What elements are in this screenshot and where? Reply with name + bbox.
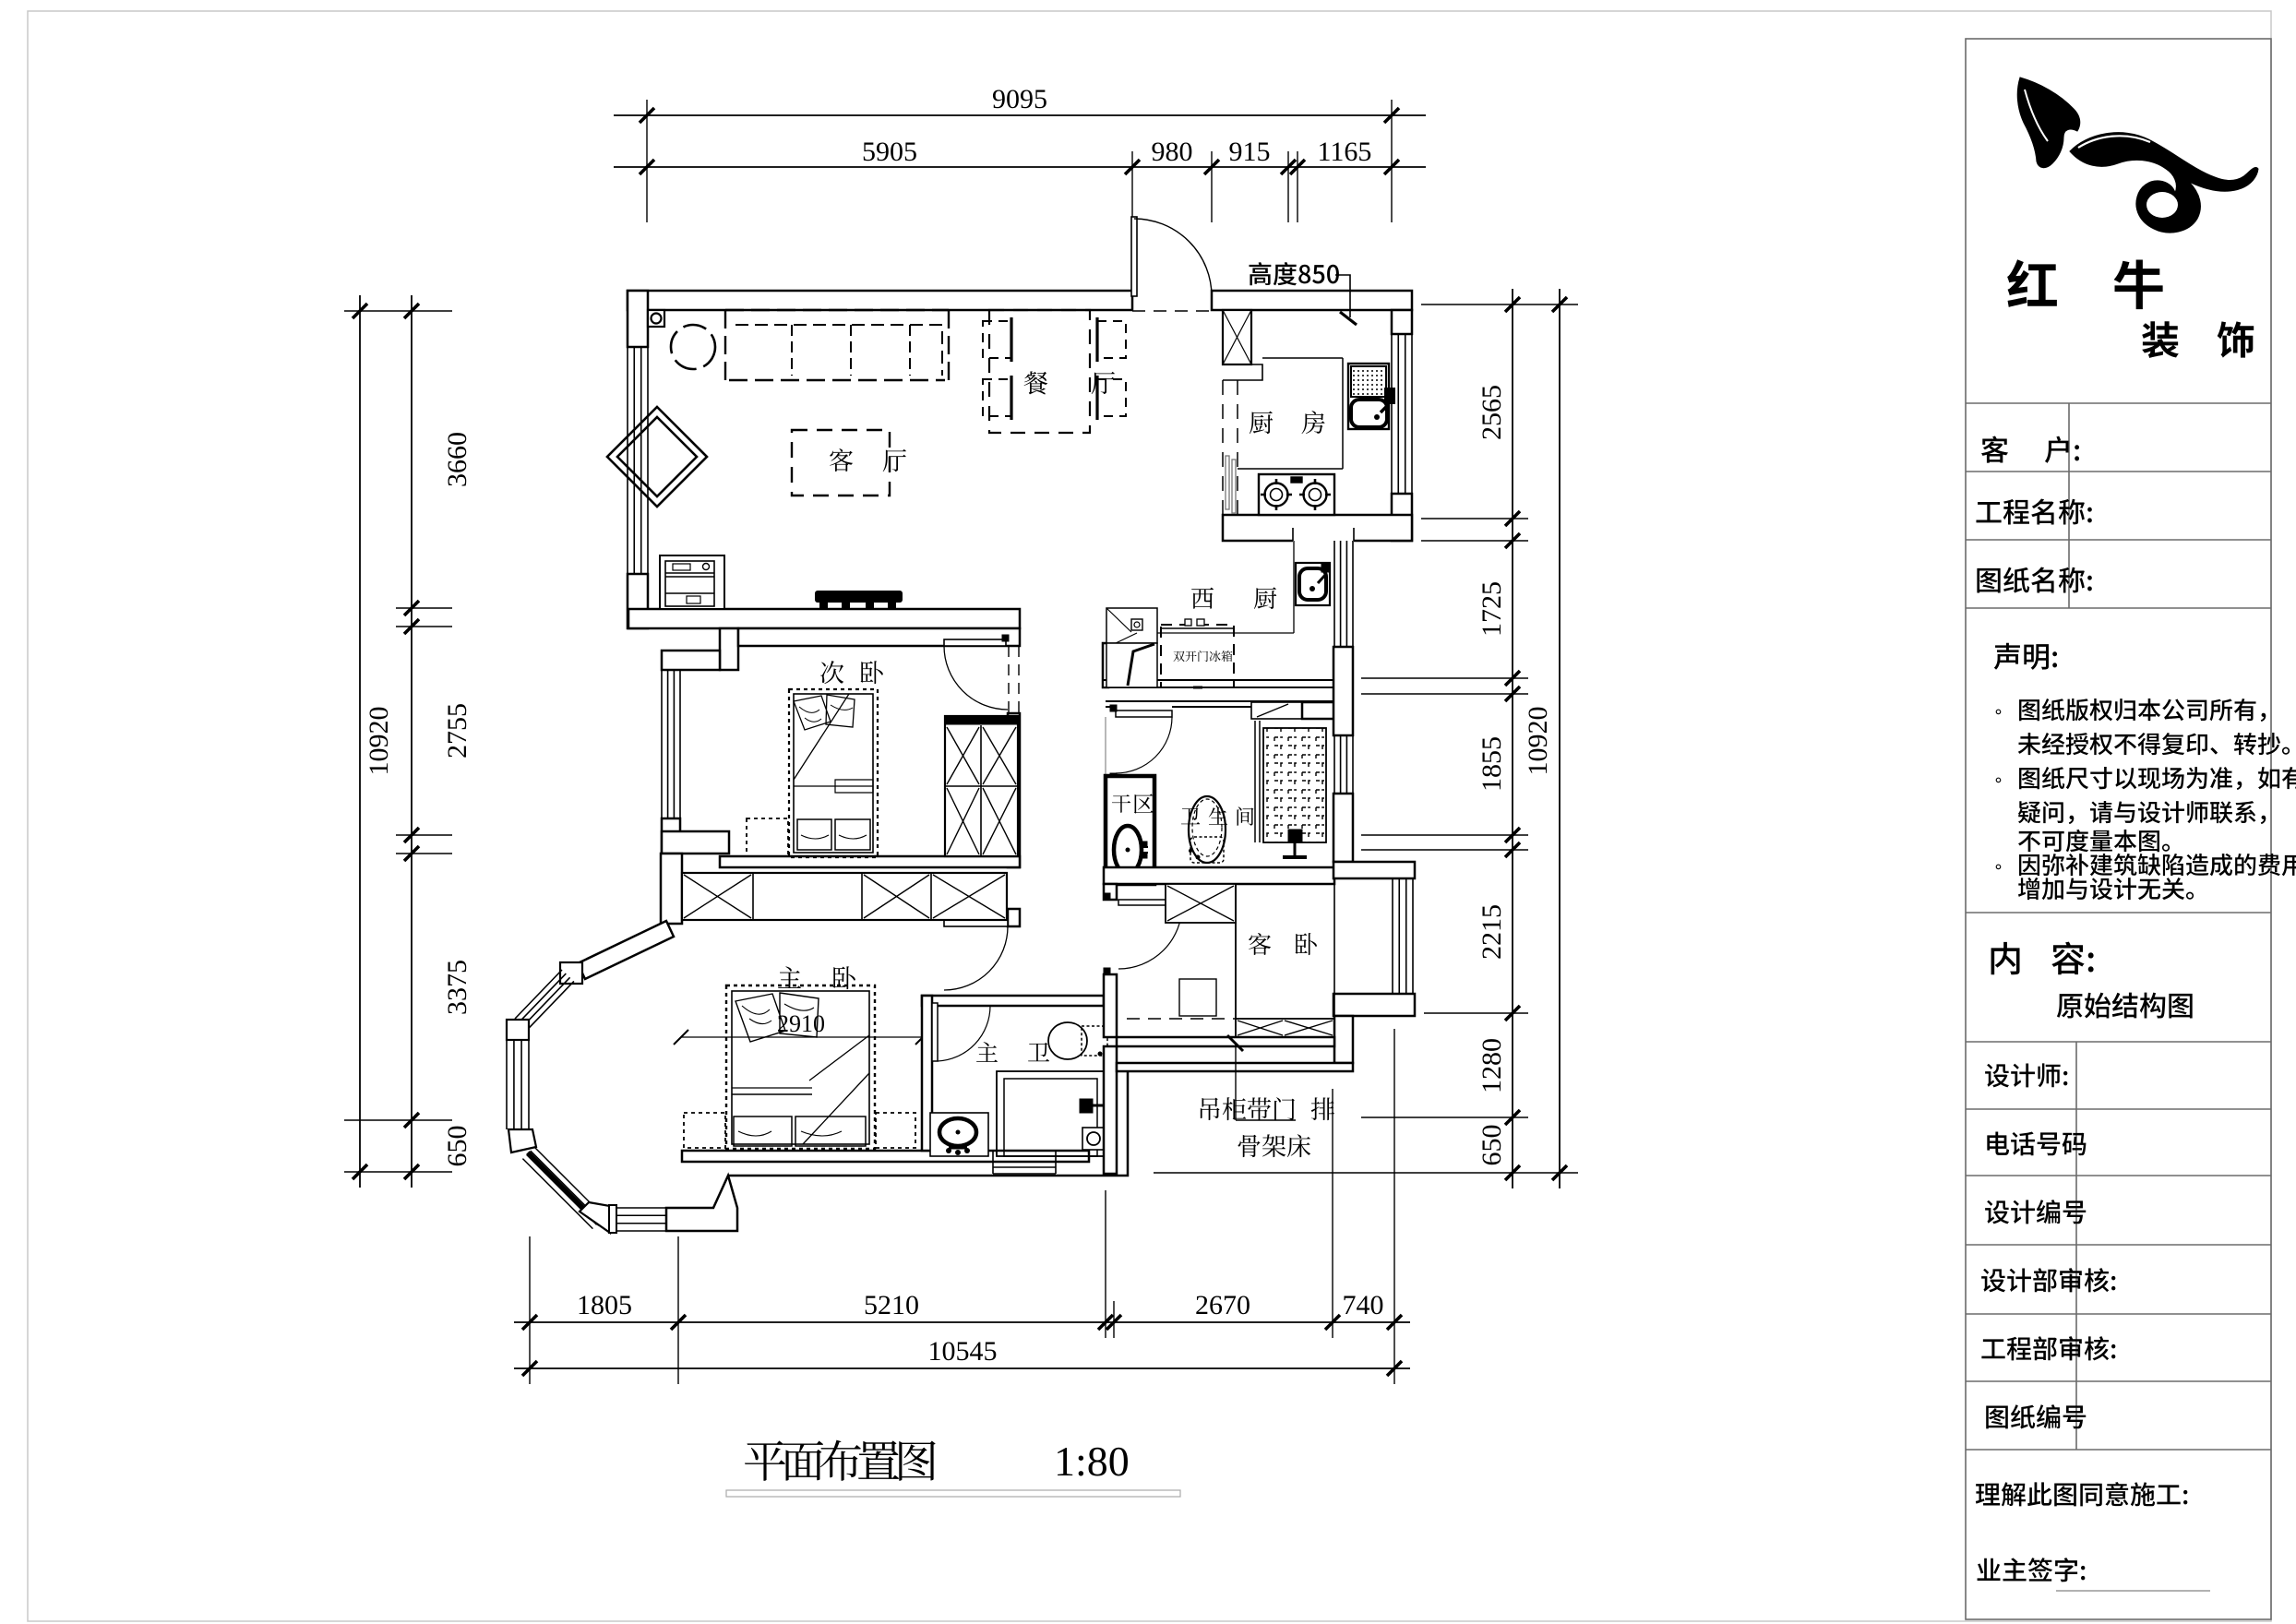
svg-text:10920: 10920 <box>1523 707 1553 776</box>
svg-text:2910: 2910 <box>777 1010 825 1037</box>
svg-text:2755: 2755 <box>442 703 472 758</box>
svg-text:650: 650 <box>1477 1125 1507 1166</box>
svg-text:2670: 2670 <box>1195 1290 1250 1320</box>
svg-text:740: 740 <box>1343 1290 1384 1320</box>
svg-text:915: 915 <box>1229 137 1271 167</box>
svg-text:10545: 10545 <box>928 1336 998 1367</box>
svg-text:5905: 5905 <box>862 137 917 167</box>
svg-text:10920: 10920 <box>364 707 394 776</box>
svg-text:2565: 2565 <box>1477 385 1507 440</box>
svg-text:2215: 2215 <box>1477 904 1507 960</box>
svg-text:3375: 3375 <box>442 960 472 1015</box>
svg-text:5210: 5210 <box>864 1290 919 1320</box>
svg-text:9095: 9095 <box>992 84 1047 114</box>
svg-text:1805: 1805 <box>577 1290 632 1320</box>
svg-text:1280: 1280 <box>1477 1038 1507 1093</box>
svg-text:1165: 1165 <box>1318 137 1372 167</box>
svg-text:980: 980 <box>1152 137 1193 167</box>
svg-text:1:80: 1:80 <box>1054 1438 1130 1485</box>
svg-text:650: 650 <box>442 1126 472 1167</box>
svg-text:3660: 3660 <box>442 432 472 487</box>
svg-text:1725: 1725 <box>1477 581 1507 637</box>
svg-text:1855: 1855 <box>1477 736 1507 792</box>
